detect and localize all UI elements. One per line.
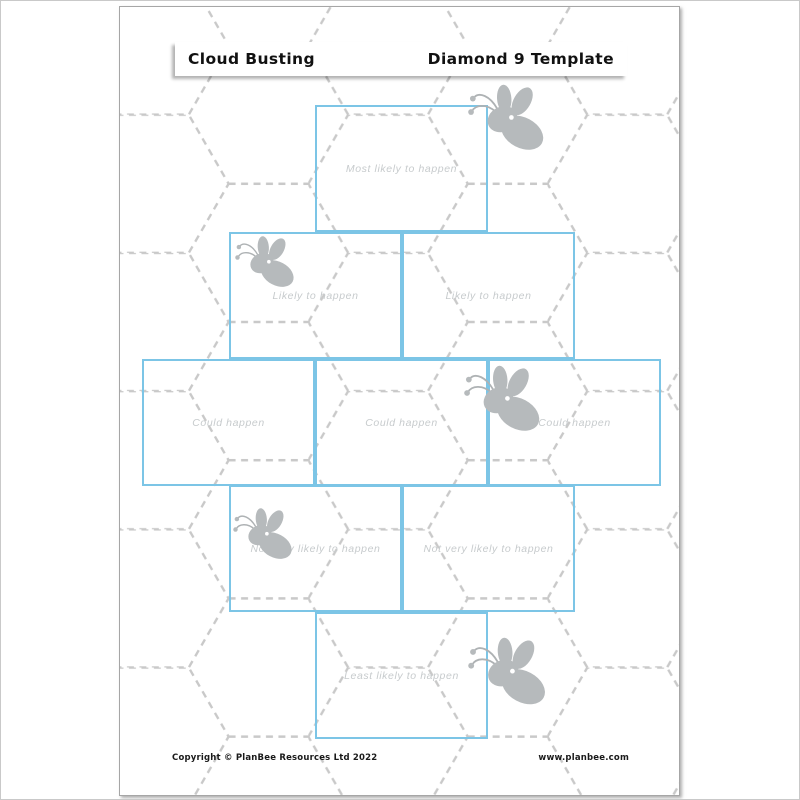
worksheet-page: Most likely to happen Likely to happen L…	[119, 6, 680, 796]
doc-title: Cloud Busting	[188, 50, 315, 68]
box-label: Could happen	[538, 417, 611, 429]
copyright-text: Copyright © PlanBee Resources Ltd 2022	[172, 753, 377, 763]
diamond-box-4: Could happen	[142, 359, 315, 486]
box-label: Likely to happen	[445, 290, 531, 302]
box-label: Could happen	[365, 417, 438, 429]
diamond-box-5: Could happen	[315, 359, 488, 486]
header-bar: Cloud Busting Diamond 9 Template	[175, 42, 627, 76]
diamond-box-1: Most likely to happen	[315, 105, 488, 232]
box-label: Not very likely to happen	[251, 543, 381, 555]
footer: Copyright © PlanBee Resources Ltd 2022 w…	[172, 751, 629, 765]
screenshot-frame: Most likely to happen Likely to happen L…	[0, 0, 800, 800]
diamond-box-6: Could happen	[488, 359, 661, 486]
diamond-box-3: Likely to happen	[402, 232, 575, 359]
diamond-box-9: Least likely to happen	[315, 612, 488, 739]
website-text: www.planbee.com	[538, 753, 629, 763]
box-label: Likely to happen	[272, 290, 358, 302]
box-label: Least likely to happen	[344, 670, 459, 682]
box-label: Not very likely to happen	[424, 543, 554, 555]
box-label: Most likely to happen	[346, 163, 457, 175]
box-label: Could happen	[192, 417, 265, 429]
diamond-box-7: Not very likely to happen	[229, 485, 402, 612]
template-title: Diamond 9 Template	[428, 50, 614, 68]
diamond-box-2: Likely to happen	[229, 232, 402, 359]
diamond-box-8: Not very likely to happen	[402, 485, 575, 612]
